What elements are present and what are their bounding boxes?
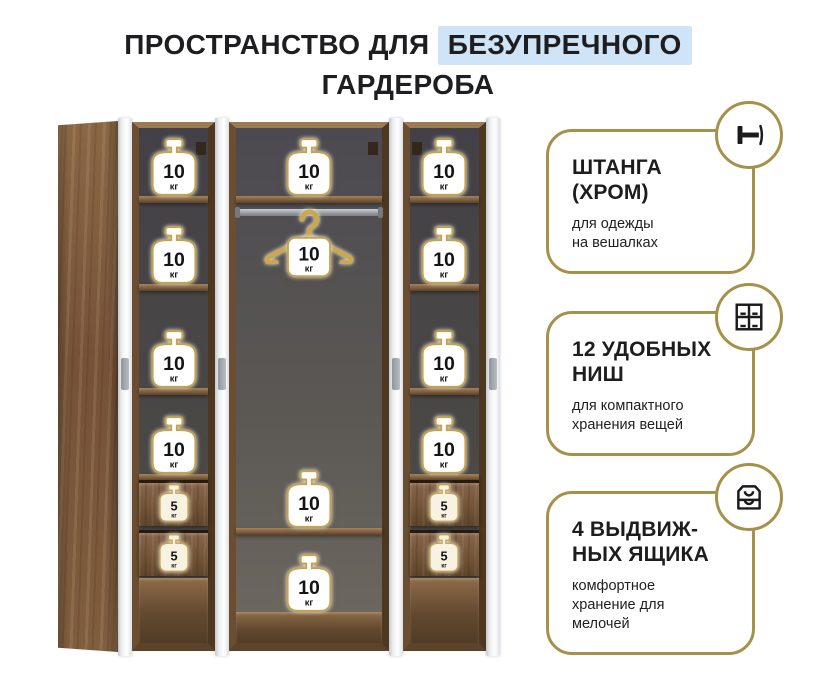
door-handle [121,358,129,390]
svg-text:кг: кг [305,597,314,607]
svg-text:кг: кг [305,181,314,191]
feature-circle [715,463,783,531]
weight-badge: 10 кг [148,138,200,196]
svg-text:кг: кг [440,269,449,279]
door-handle [392,358,400,390]
door-handle [218,358,226,390]
wardrobe-illustration: 10 кг 10 кг 10 кг 10 кг 10 кг [40,116,502,662]
door-edge-left [118,118,132,656]
svg-text:кг: кг [441,564,447,570]
svg-text:10: 10 [298,161,320,183]
feature-circle [715,283,783,351]
niches-grid-icon [731,299,767,335]
svg-text:5: 5 [440,548,447,563]
feature-description: комфортное хранение для мелочей [572,577,736,634]
feature-title: 12 УДОБНЫХ НИШ [572,338,736,388]
drawer-weight-badge: 5 кг [157,534,191,572]
svg-text:10: 10 [163,249,185,271]
svg-text:5: 5 [440,498,447,513]
shelf [410,196,479,203]
drawers-icon [731,479,767,515]
weight-badge: 10 кг [148,416,200,474]
feature-title: ШТАНГА (ХРОМ) [572,156,736,206]
title-prefix: ПРОСТРАНСТВО ДЛЯ [124,29,429,60]
door-edge-middle-right [389,118,403,656]
weight-badge: 10 кг [148,226,200,284]
weight-badge: 10 кг [418,330,470,388]
feature-card-niches: 12 УДОБНЫХ НИШ для компактного хранения … [546,311,755,456]
open-wood-door [58,121,118,652]
svg-text:5: 5 [170,548,177,563]
hanger-weight-badge: 10 кг [286,236,332,278]
feature-circle [715,101,783,169]
svg-text:10: 10 [298,493,320,515]
door-handle [489,358,497,390]
drawer-weight-badge: 5 кг [157,484,191,522]
shelf [410,284,479,291]
feature-title: 4 ВЫДВИЖ- НЫХ ЯЩИКА [572,518,736,568]
svg-text:кг: кг [305,264,314,274]
shelf [410,388,479,395]
svg-text:кг: кг [170,181,179,191]
svg-text:кг: кг [305,513,314,523]
feature-card-rod: ШТАНГА (ХРОМ) для одежды на вешалках [546,129,755,274]
svg-text:кг: кг [170,373,179,383]
weight-badge: 10 кг [283,138,335,196]
drawer-weight-badge: 5 кг [427,484,461,522]
svg-text:10: 10 [298,245,319,266]
svg-text:10: 10 [163,439,185,461]
svg-text:кг: кг [170,269,179,279]
svg-text:кг: кг [440,373,449,383]
svg-text:10: 10 [163,161,185,183]
cabinet-base [139,578,208,643]
weight-badge: 10 кг [418,226,470,284]
title-line-1: ПРОСТРАНСТВО ДЛЯ БЕЗУПРЕЧНОГО [0,26,816,64]
door-edge-right [486,118,500,656]
svg-text:кг: кг [170,459,179,469]
svg-text:кг: кг [171,514,177,520]
svg-text:10: 10 [298,577,320,599]
weight-badge: 10 кг [418,416,470,474]
cabinet-base [236,612,382,643]
svg-text:10: 10 [433,161,455,183]
svg-text:5: 5 [170,498,177,513]
svg-text:кг: кг [441,514,447,520]
weight-badge: 10 кг [283,470,335,528]
weight-badge: 10 кг [418,138,470,196]
shelf [139,196,208,203]
svg-text:кг: кг [171,564,177,570]
page-title: ПРОСТРАНСТВО ДЛЯ БЕЗУПРЕЧНОГО ГАРДЕРОБА [0,26,816,104]
title-highlight: БЕЗУПРЕЧНОГО [438,26,692,65]
shelf [139,284,208,291]
feature-description: для одежды на вешалках [572,215,736,253]
svg-text:10: 10 [163,353,185,375]
hinge-block [368,142,378,155]
weight-badge: 10 кг [283,554,335,612]
feature-card-drawers: 4 ВЫДВИЖ- НЫХ ЯЩИКА комфортное хранение … [546,491,755,655]
weight-badge: 10 кг [148,330,200,388]
title-line-2: ГАРДЕРОБА [0,66,816,104]
clothes-rail-icon [731,117,767,153]
svg-text:кг: кг [440,181,449,191]
svg-text:10: 10 [433,439,455,461]
svg-text:10: 10 [433,249,455,271]
svg-text:кг: кг [440,459,449,469]
cabinet-base [410,578,479,643]
door-edge-middle-left [215,118,229,656]
svg-text:10: 10 [433,353,455,375]
drawer-weight-badge: 5 кг [427,534,461,572]
feature-description: для компактного хранения вещей [572,397,736,435]
shelf [236,528,382,535]
shelf [139,388,208,395]
infographic-page: ПРОСТРАНСТВО ДЛЯ БЕЗУПРЕЧНОГО ГАРДЕРОБА [0,0,816,700]
shelf [236,196,382,203]
